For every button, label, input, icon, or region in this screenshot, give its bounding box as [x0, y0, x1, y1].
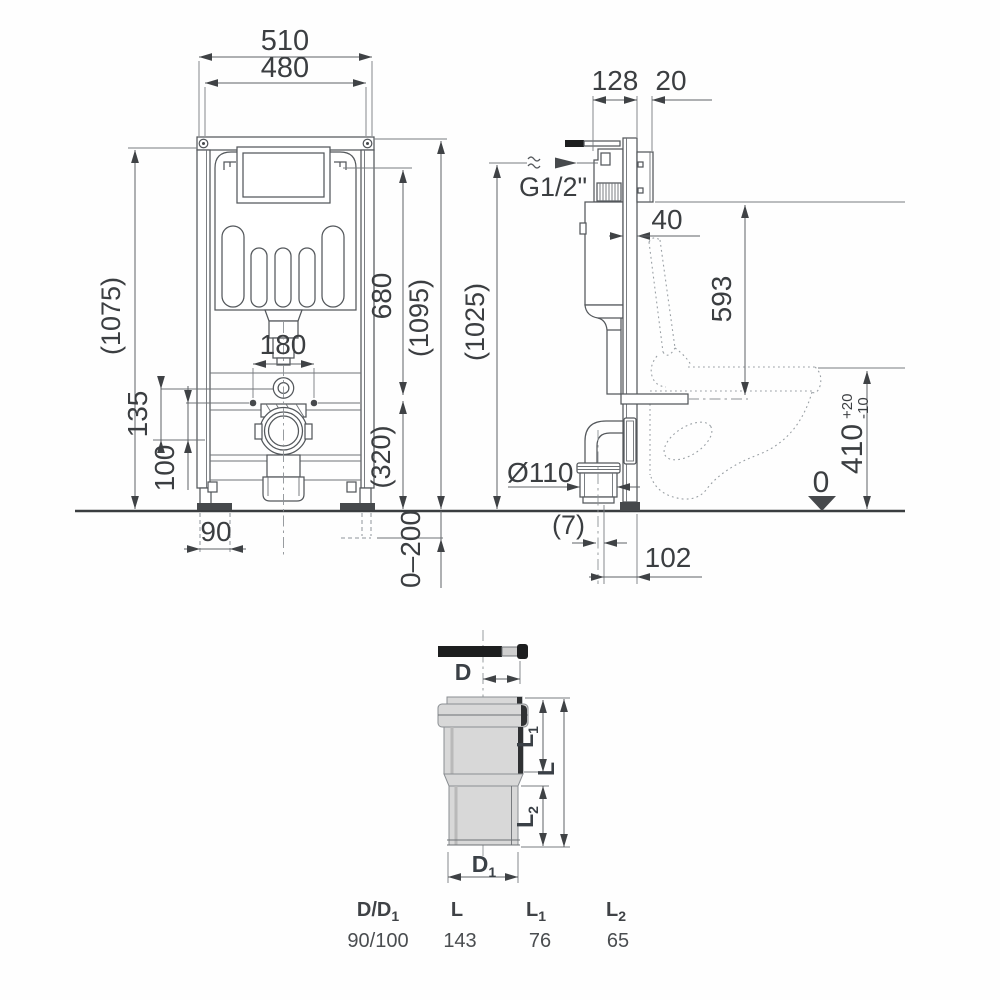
table-value-l: 143	[443, 930, 476, 952]
water-supply-wave-icon	[528, 157, 540, 168]
dim-height-total: (1095)	[404, 279, 434, 357]
frame-right-leg	[360, 488, 371, 504]
technical-drawing-page: 510 480 (1075) 680 (320) (1095) 180 135 …	[0, 0, 1000, 1000]
outlet-socket-collar	[577, 463, 620, 473]
frame-left-foot-plate	[197, 503, 232, 510]
svg-text:+20: +20	[839, 394, 856, 419]
datum-triangle-icon	[808, 496, 836, 511]
adapter-rim	[447, 697, 522, 704]
svg-text:410: 410	[836, 424, 869, 474]
supply-arrow-icon	[555, 158, 577, 169]
table-value-l1: 76	[529, 930, 551, 952]
dim-floor-adjust: 0–200	[395, 510, 426, 588]
dim-outlet-to-wall: 102	[645, 542, 692, 573]
anchor-rod	[565, 140, 584, 147]
table-value-l2: 65	[607, 930, 629, 952]
installation-drawing: 510 480 (1075) 680 (320) (1095) 180 135 …	[0, 0, 1000, 1000]
table-header-l2: L2	[606, 899, 626, 924]
waste-elbow	[585, 421, 623, 463]
dimension-table: D/D1 L L1 L2 90/100 143 76 65	[347, 899, 629, 952]
label-d: D	[455, 659, 472, 685]
dim-width-inner: 480	[261, 52, 309, 84]
dim-100: 100	[149, 445, 180, 492]
dim-bolt-spacing: 180	[260, 329, 307, 360]
actuator-access-box	[637, 152, 653, 202]
rail-foot	[620, 502, 640, 511]
dim-install-height: (1025)	[460, 283, 490, 361]
datum-zero-label: 0	[813, 466, 830, 499]
frame-left-rail	[197, 150, 210, 488]
dim-spigot-height: 593	[706, 276, 737, 323]
adapter-collar	[438, 704, 528, 727]
dim-frame-depth: 128	[592, 65, 639, 96]
dim-flush-plate-height: 680	[366, 273, 397, 320]
dim-135: 135	[122, 391, 153, 438]
dim-profile-depth: 40	[651, 204, 682, 235]
mounting-bolt-dot	[250, 400, 257, 407]
table-header-l1: L1	[526, 899, 546, 924]
side-view-dimensions: 128 20 G1/2" 40 593 (1025) Ø110 (7) 102 …	[460, 65, 905, 584]
dim-wall-panel: 20	[655, 65, 686, 96]
label-d1: D1	[472, 851, 497, 880]
flush-pipe-side	[607, 330, 621, 394]
outlet-socket	[580, 473, 617, 497]
dim-outlet-diameter: Ø110	[507, 457, 573, 488]
dim-foot-width: 90	[200, 516, 231, 547]
dim-outlet-offset: (7)	[552, 510, 585, 540]
wc-fixing-bracket	[624, 418, 636, 464]
table-header-l: L	[451, 899, 463, 921]
svg-text:-10: -10	[855, 397, 872, 419]
frame-right-foot-plate	[340, 503, 375, 510]
dim-lower-section: (320)	[366, 425, 396, 488]
table-value-dd1: 90/100	[347, 930, 408, 952]
supply-thread-label: G1/2"	[519, 172, 587, 202]
label-l: L	[533, 762, 559, 776]
table-header-dd1: D/D1	[357, 899, 399, 924]
adapter-pipe	[449, 786, 518, 845]
flush-arm	[621, 394, 688, 404]
cistern-side-lower	[585, 202, 623, 305]
dim-height-frame: (1075)	[96, 277, 126, 355]
dim-bowl-height: 410 +20 -10	[836, 394, 872, 474]
mounting-bolt-dot	[311, 400, 318, 407]
adapter-top-bar	[438, 646, 502, 657]
